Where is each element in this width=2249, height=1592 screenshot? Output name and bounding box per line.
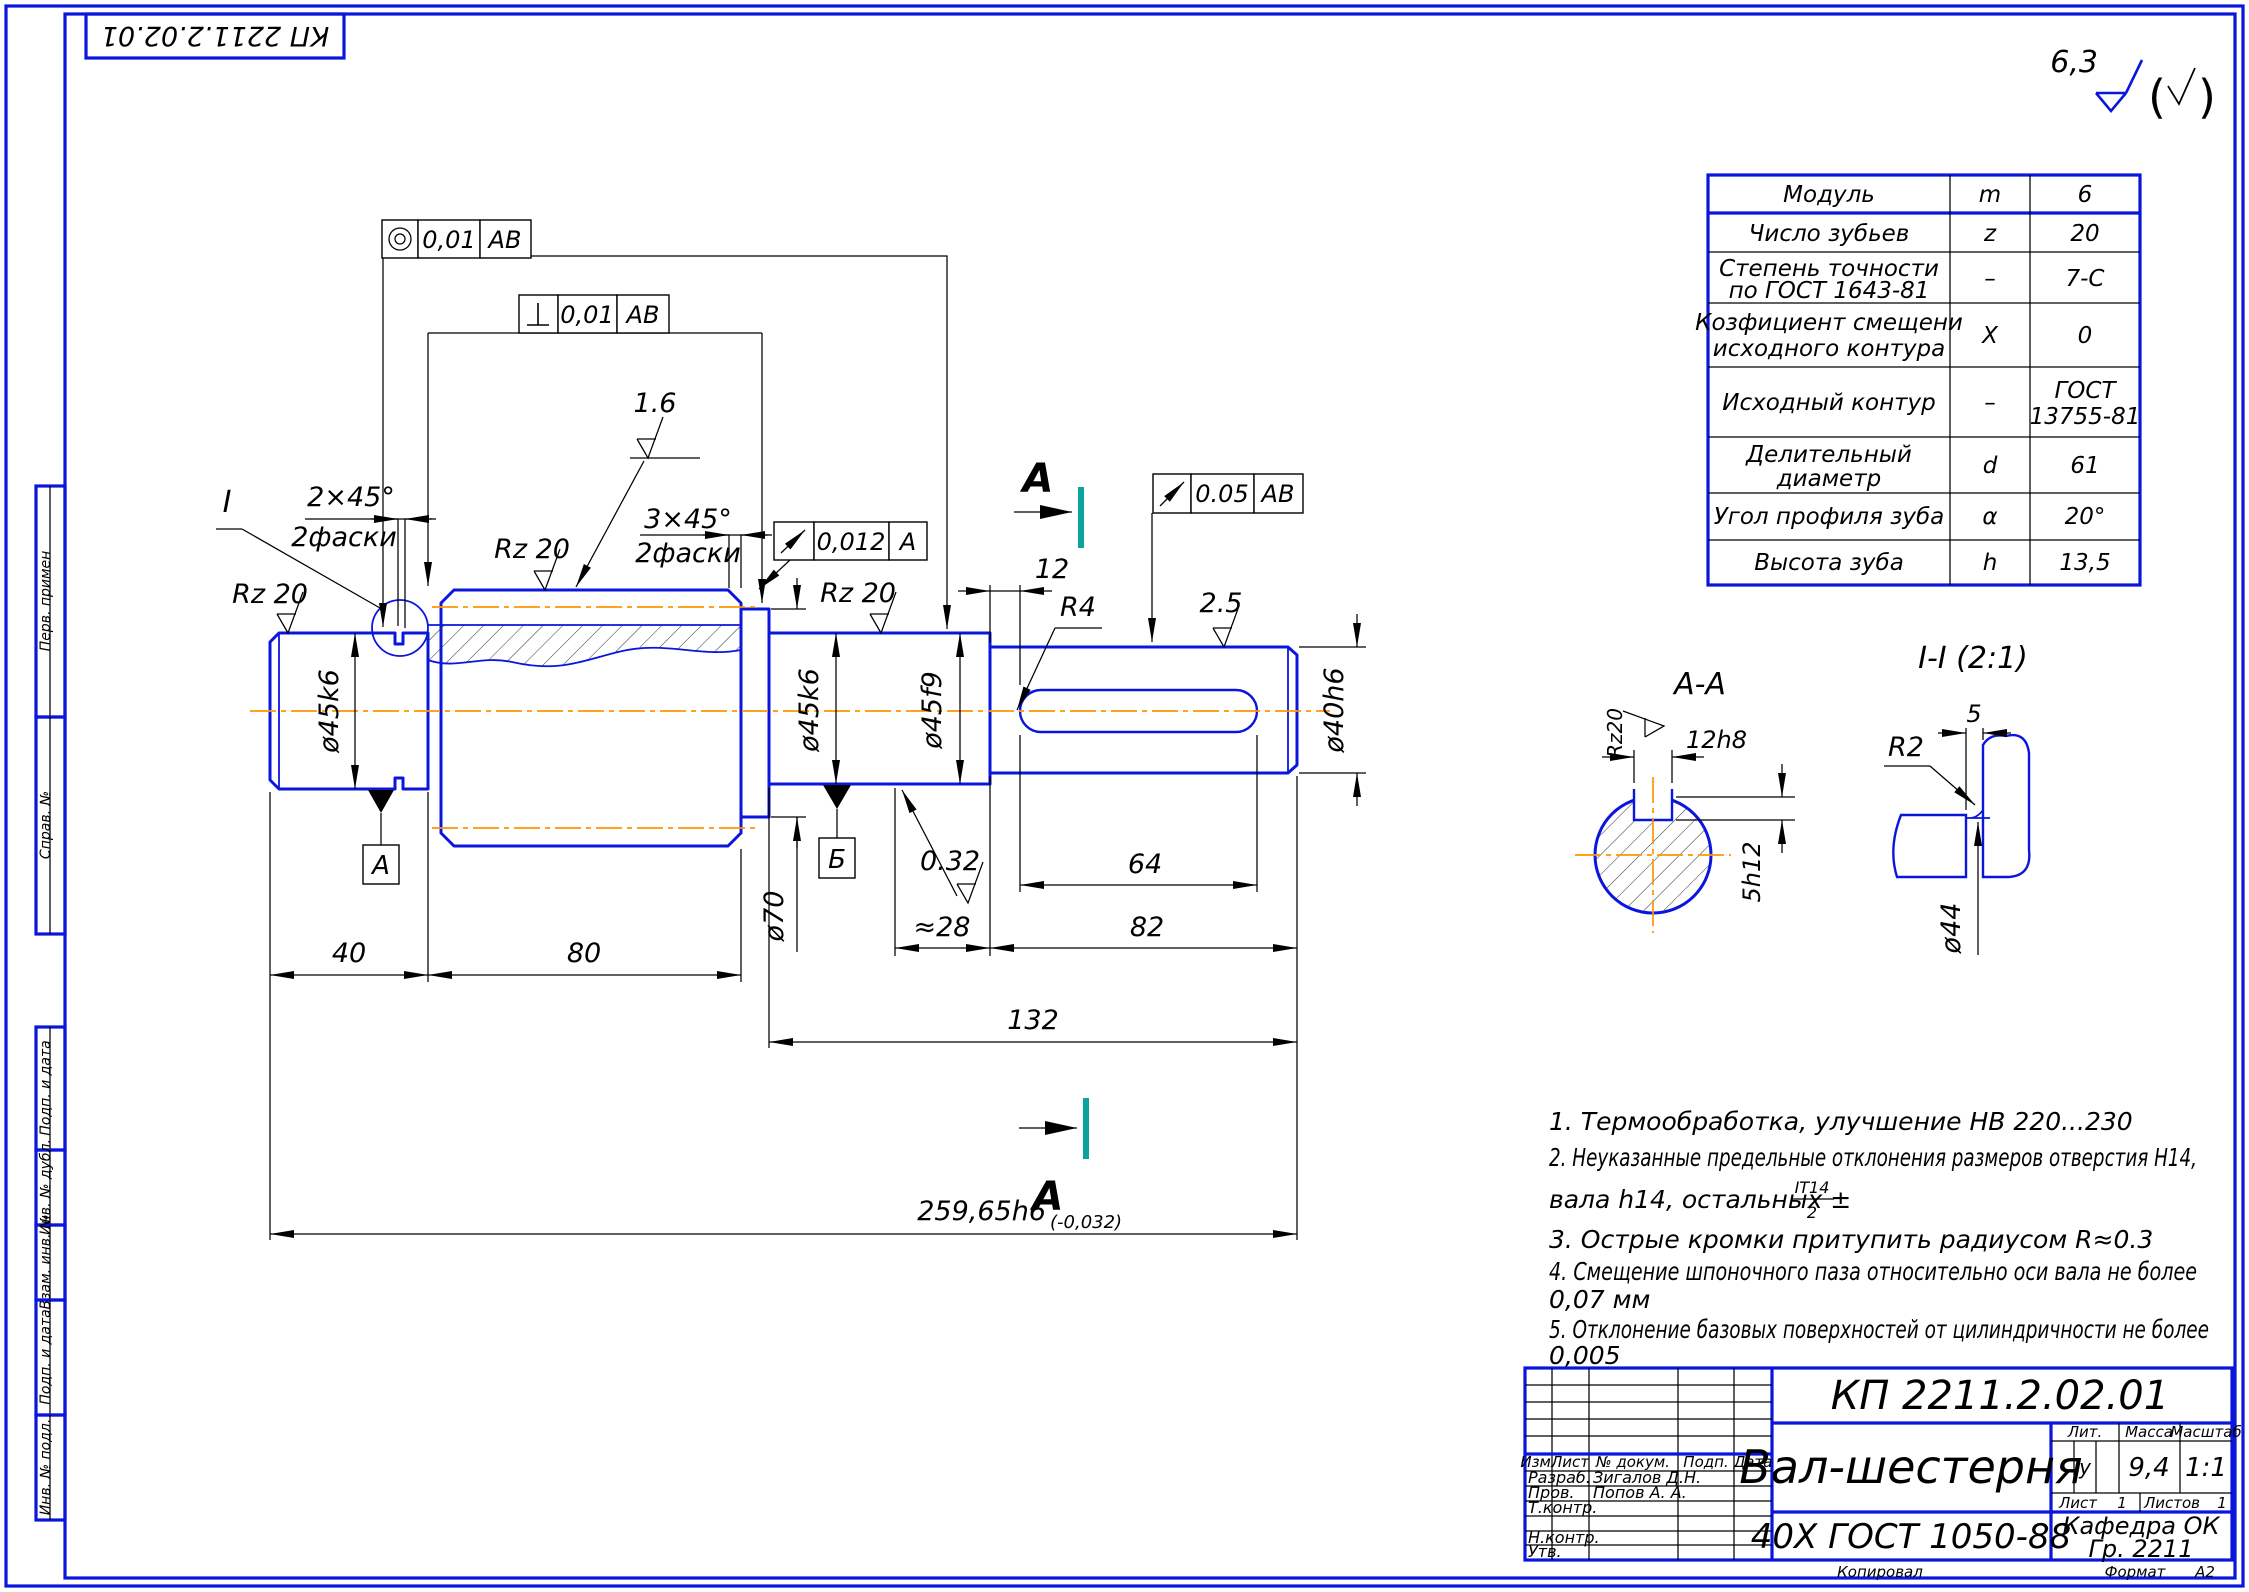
doc-number: КП 2211.2.02.01 <box>1831 1373 2169 1419</box>
roughness-1-6: 1.6 <box>634 388 677 419</box>
dim-28: ≈28 <box>914 912 971 943</box>
param-name: Козфициент смещени <box>1695 310 1963 336</box>
format-value: А2 <box>2194 1563 2215 1581</box>
chamfer-dim-3x45: 3×45° 2фаски <box>635 504 772 588</box>
roughness-bracket-check-icon <box>2168 68 2195 104</box>
gear-table-row-4: Исходный контур – ГОСТ 13755-81 <box>1722 378 2140 430</box>
dim-40: 40 <box>332 938 366 969</box>
mass-label: Масса <box>2125 1423 2173 1441</box>
section-letter: А <box>1030 1174 1064 1220</box>
row-utv: Утв. <box>1528 1542 1562 1561</box>
note-1: 1. Термообработка, улучшение НВ 220...23… <box>1549 1107 2133 1136</box>
datum-triangle <box>823 785 851 809</box>
dim-r4: R4 <box>1060 592 1096 623</box>
sidebar-cell-6: Инв. № подл. <box>36 1415 65 1520</box>
datum-triangle <box>368 790 394 813</box>
section-mark-top: А <box>1014 456 1081 548</box>
section-letter: А <box>1020 456 1054 502</box>
sidebar-cell-4: Взам. инв. № <box>36 1214 65 1309</box>
sheets-value: 1 <box>2217 1494 2227 1512</box>
sheet-value: 1 <box>2117 1494 2127 1512</box>
drawing-sheet: КП 2211.2.02.01 Перв. примен Справ. № По… <box>0 0 2249 1592</box>
stamp-doc-number: КП 2211.2.02.01 <box>101 20 329 51</box>
note-2a: 2. Неуказанные предельные отклонения раз… <box>1549 1143 2197 1172</box>
chamfer-qty: 2фаски <box>291 522 397 553</box>
rz20-journal1: Rz 20 <box>232 579 308 610</box>
roughness-check-icon <box>2096 60 2142 111</box>
dia-70: ø70 <box>759 891 790 943</box>
sheets-label: Листов <box>2143 1494 2200 1512</box>
chamfer-text: 2×45° <box>307 482 395 513</box>
hub-profile <box>1983 735 2029 877</box>
datum-b: Б <box>819 785 855 878</box>
prov-name: Попов А. А. <box>1593 1483 1687 1502</box>
kopiroval-label: Копировал <box>1837 1563 1923 1581</box>
dim-132: 132 <box>1007 1005 1059 1036</box>
rz20-section: Rz20 <box>1603 708 1627 758</box>
note-5b: 0,005 <box>1549 1341 1621 1370</box>
param-symbol: z <box>1983 221 1997 247</box>
roughness-icon <box>630 417 700 458</box>
material: 40Х ГОСТ 1050-88 <box>1751 1517 2071 1557</box>
detail-ii-title: I-I (2:1) <box>1918 641 2028 676</box>
dim-12h8: 12h8 <box>1686 726 1747 754</box>
dim-64: 64 <box>1128 849 1162 880</box>
lit-label: Лит. <box>2067 1423 2103 1441</box>
dim-groove-5: 5 <box>1966 700 1981 728</box>
param-symbol: α <box>1982 504 1997 530</box>
param-name: Делительный <box>1745 442 1912 468</box>
paren-open: ( <box>2148 70 2166 124</box>
param-symbol: – <box>1984 390 1996 416</box>
param-value: 7-С <box>2066 266 2105 292</box>
dim-82: 82 <box>1130 912 1164 943</box>
param-name2: по ГОСТ 1643-81 <box>1729 278 1930 304</box>
gear-table-row-1: Число зубьев z 20 <box>1749 221 2100 247</box>
param-name2: исходного контура <box>1713 336 1945 362</box>
dim-dia44: ø44 <box>1936 903 1967 955</box>
note-frac-bot: 2 <box>1807 1203 1817 1222</box>
param-value2: 13755-81 <box>2030 404 2141 430</box>
roughness-icon <box>1623 711 1664 737</box>
general-roughness: 6,3 ( ) <box>2050 45 2216 124</box>
param-value: 0 <box>2078 323 2093 349</box>
tolerance-value: 0,01 <box>422 226 475 254</box>
sidebar-cell-0: Перв. примен <box>36 486 65 717</box>
tolerance-datum: А <box>898 528 916 556</box>
param-name: Число зубьев <box>1749 221 1910 247</box>
top-left-stamp: КП 2211.2.02.01 <box>86 14 344 58</box>
datum-letter-b: Б <box>828 845 846 875</box>
technical-notes: 1. Термообработка, улучшение НВ 220...23… <box>1549 1107 2209 1370</box>
param-symbol: h <box>1983 550 1998 576</box>
dim-r2: R2 <box>1888 732 1924 763</box>
detail-label: I <box>223 485 232 520</box>
dim-5h12: 5h12 <box>1738 841 1766 902</box>
gear-parameter-table: Модуль m 6 Число зубьев z 20 Степень точ… <box>1695 175 2140 585</box>
sidebar-label: Перв. примен <box>38 551 54 652</box>
left-sidebar: Перв. примен Справ. № Подп. и дата Инв. … <box>36 486 65 1520</box>
gear-table-row-0: Модуль m 6 <box>1783 182 2092 208</box>
sidebar-label: Взам. инв. № <box>38 1214 54 1309</box>
sidebar-label: Инв. № подл. <box>38 1419 54 1516</box>
param-value: 13,5 <box>2059 550 2110 576</box>
sidebar-cell-1: Справ. № <box>36 717 65 934</box>
dia-40h6: ø40h6 <box>1319 667 1350 753</box>
note-4a: 4. Смещение шпоночного паза относительно… <box>1549 1257 2197 1286</box>
section-view-aa: А-А 12h8 5h12 Rz20 <box>1575 667 1795 933</box>
tolerance-value: 0,012 <box>817 528 886 556</box>
param-name: Высота зуба <box>1754 550 1904 576</box>
param-symbol: – <box>1984 266 1996 292</box>
param-name: Угол профиля зуба <box>1714 504 1944 530</box>
note-frac-top: IT14 <box>1795 1178 1830 1197</box>
sidebar-label: Подп. и дата <box>38 1040 54 1135</box>
dim-total: 259,65h6 <box>917 1196 1046 1227</box>
row-tkontr: Т.контр. <box>1528 1498 1597 1517</box>
shaft-main-view <box>270 590 1297 846</box>
part-name: Вал-шестерня <box>1739 1440 2082 1494</box>
gear-table-row-5: Делительный диаметр d 61 <box>1745 442 2100 492</box>
sidebar-cell-5: Подп. и дата <box>36 1300 65 1415</box>
rz20-gear: Rz 20 <box>494 534 570 565</box>
mass-value: 9,4 <box>2128 1453 2169 1483</box>
shoulder-outline <box>741 609 769 817</box>
param-symbol: d <box>1983 453 1998 479</box>
rz20-journal2: Rz 20 <box>820 578 896 609</box>
paren-close: ) <box>2198 70 2216 124</box>
sheet-label: Лист <box>2058 1494 2098 1512</box>
note-3: 3. Острые кромки притупить радиусом R≈0.… <box>1549 1225 2153 1254</box>
note-4b: 0,07 мм <box>1549 1285 1650 1314</box>
section-aa-title: А-А <box>1672 667 1726 702</box>
gear-table-row-2: Степень точности по ГОСТ 1643-81 – 7-С <box>1719 256 2104 304</box>
sidebar-cell-2: Подп. и дата <box>36 1027 65 1150</box>
datum-a: А <box>363 790 399 884</box>
sidebar-label: Подп. и дата <box>38 1309 54 1404</box>
shaft-profile <box>1893 815 1966 877</box>
org-group: Гр. 2211 <box>2089 1535 2194 1563</box>
dia-45k6-left: ø45k6 <box>314 669 345 754</box>
drawing-canvas: КП 2211.2.02.01 Перв. примен Справ. № По… <box>0 0 2249 1592</box>
chamfer-dim-2x45: 2×45° 2фаски <box>291 482 436 628</box>
chamfer-qty: 2фаски <box>635 538 741 569</box>
param-name2: диаметр <box>1776 466 1881 492</box>
note-5a: 5. Отклонение базовых поверхностей от ци… <box>1549 1315 2209 1344</box>
param-value: 61 <box>2070 453 2099 479</box>
param-value: 20° <box>2065 504 2106 530</box>
datum-letter-a: А <box>370 851 390 881</box>
detail-view-ii: I-I (2:1) 5 R2 ø44 <box>1884 641 2029 955</box>
tolerance-value: 0,01 <box>560 301 613 329</box>
param-name: Исходный контур <box>1722 390 1936 416</box>
tolerance-value: 0.05 <box>1195 480 1248 508</box>
dia-45f9: ø45f9 <box>917 671 948 750</box>
sidebar-label: Справ. № <box>38 791 54 859</box>
param-value: 6 <box>2078 182 2093 208</box>
scale-value: 1:1 <box>2185 1453 2227 1483</box>
param-symbol: X <box>1981 323 1999 349</box>
lit-value: у <box>2078 1455 2092 1479</box>
roughness-0-32: 0.32 <box>920 846 980 877</box>
dim-80: 80 <box>567 938 601 969</box>
gear-table-row-7: Высота зуба h 13,5 <box>1754 550 2110 576</box>
dim-12: 12 <box>1035 554 1069 585</box>
tolerance-datum: АВ <box>487 226 522 254</box>
dia-45k6-mid: ø45k6 <box>794 668 825 753</box>
title-block: Изм. Лист № докум. Подп. Дата Разраб. Зи… <box>1520 1368 2241 1581</box>
roughness-leader <box>902 790 957 896</box>
gear-table-row-3: Козфициент смещени исходного контура X 0 <box>1695 310 2092 362</box>
scale-label: Масштаб <box>2170 1423 2241 1441</box>
gear-table-row-6: Угол профиля зуба α 20° <box>1714 504 2106 530</box>
param-symbol: m <box>1979 182 2001 208</box>
roughness-leader <box>576 461 644 587</box>
chamfer-text: 3×45° <box>644 504 732 535</box>
param-name: Модуль <box>1783 182 1875 208</box>
param-value: ГОСТ <box>2054 378 2117 404</box>
format-label: Формат <box>2105 1563 2167 1581</box>
general-roughness-value: 6,3 <box>2050 45 2098 80</box>
tolerance-datum: АВ <box>1260 480 1295 508</box>
tolerance-datum: АВ <box>625 301 660 329</box>
keyway-slot <box>1020 690 1257 732</box>
param-value: 20 <box>2070 221 2099 247</box>
